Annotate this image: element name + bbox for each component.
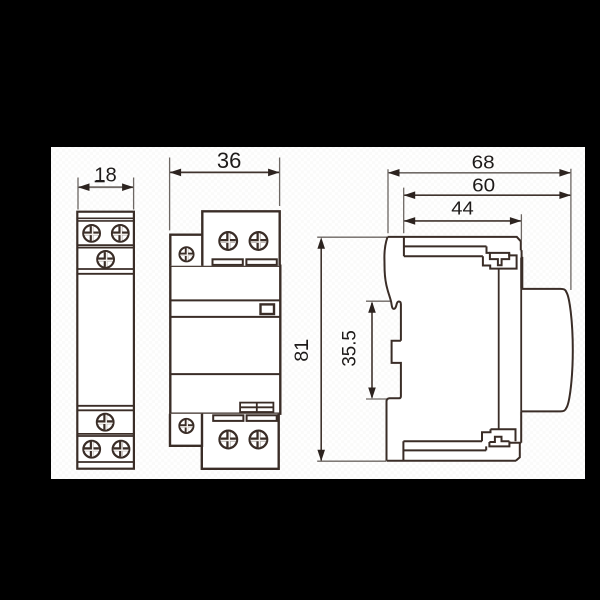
svg-text:68: 68 xyxy=(472,153,495,173)
svg-text:18: 18 xyxy=(94,165,117,187)
svg-text:35.5: 35.5 xyxy=(339,330,360,367)
svg-text:81: 81 xyxy=(292,340,313,362)
svg-text:60: 60 xyxy=(472,176,495,196)
svg-text:44: 44 xyxy=(451,199,474,219)
svg-text:36: 36 xyxy=(217,148,242,173)
